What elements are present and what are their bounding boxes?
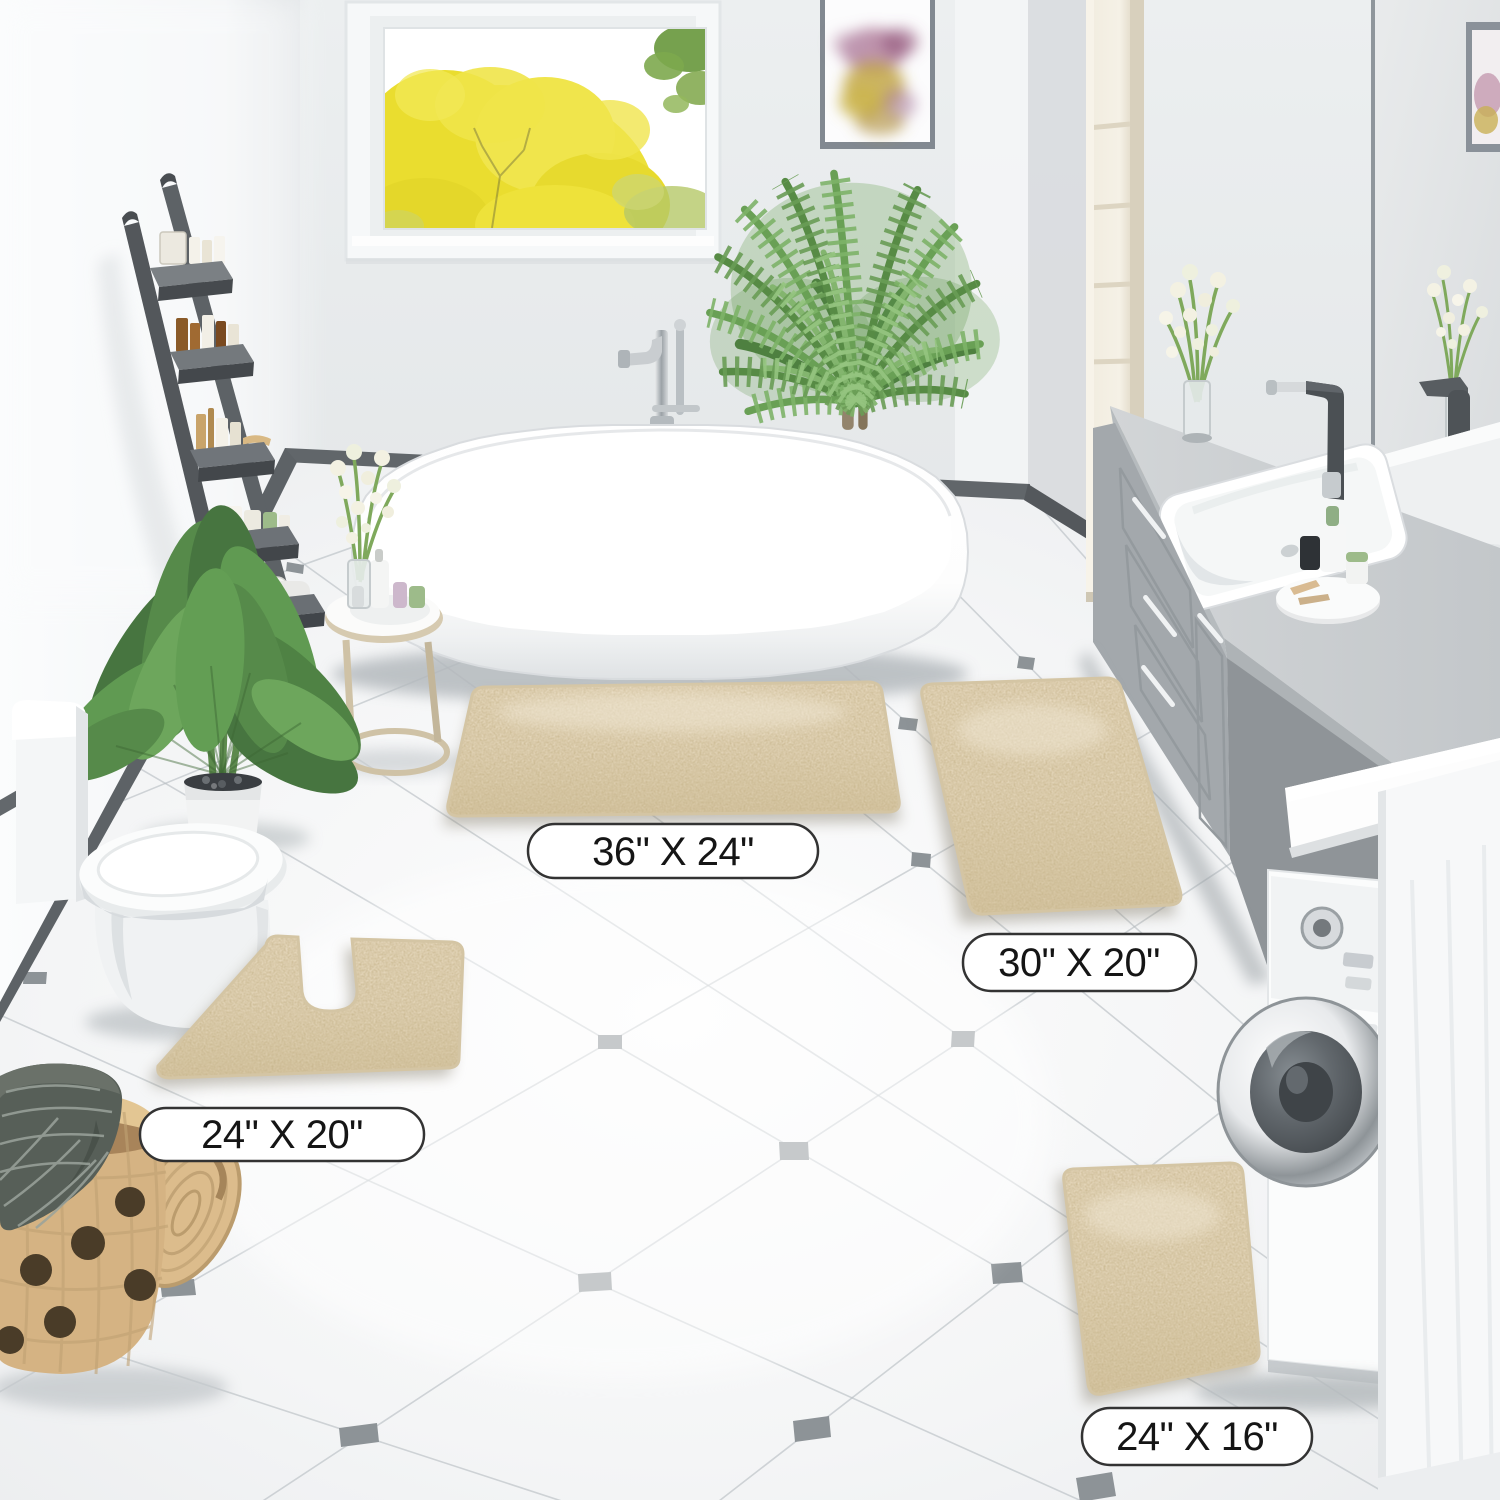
svg-text:36" X 24": 36" X 24" — [592, 830, 754, 874]
svg-text:24" X 16": 24" X 16" — [1116, 1415, 1278, 1459]
svg-text:30" X 20": 30" X 20" — [998, 941, 1160, 985]
svg-text:24" X 20": 24" X 20" — [201, 1113, 363, 1157]
